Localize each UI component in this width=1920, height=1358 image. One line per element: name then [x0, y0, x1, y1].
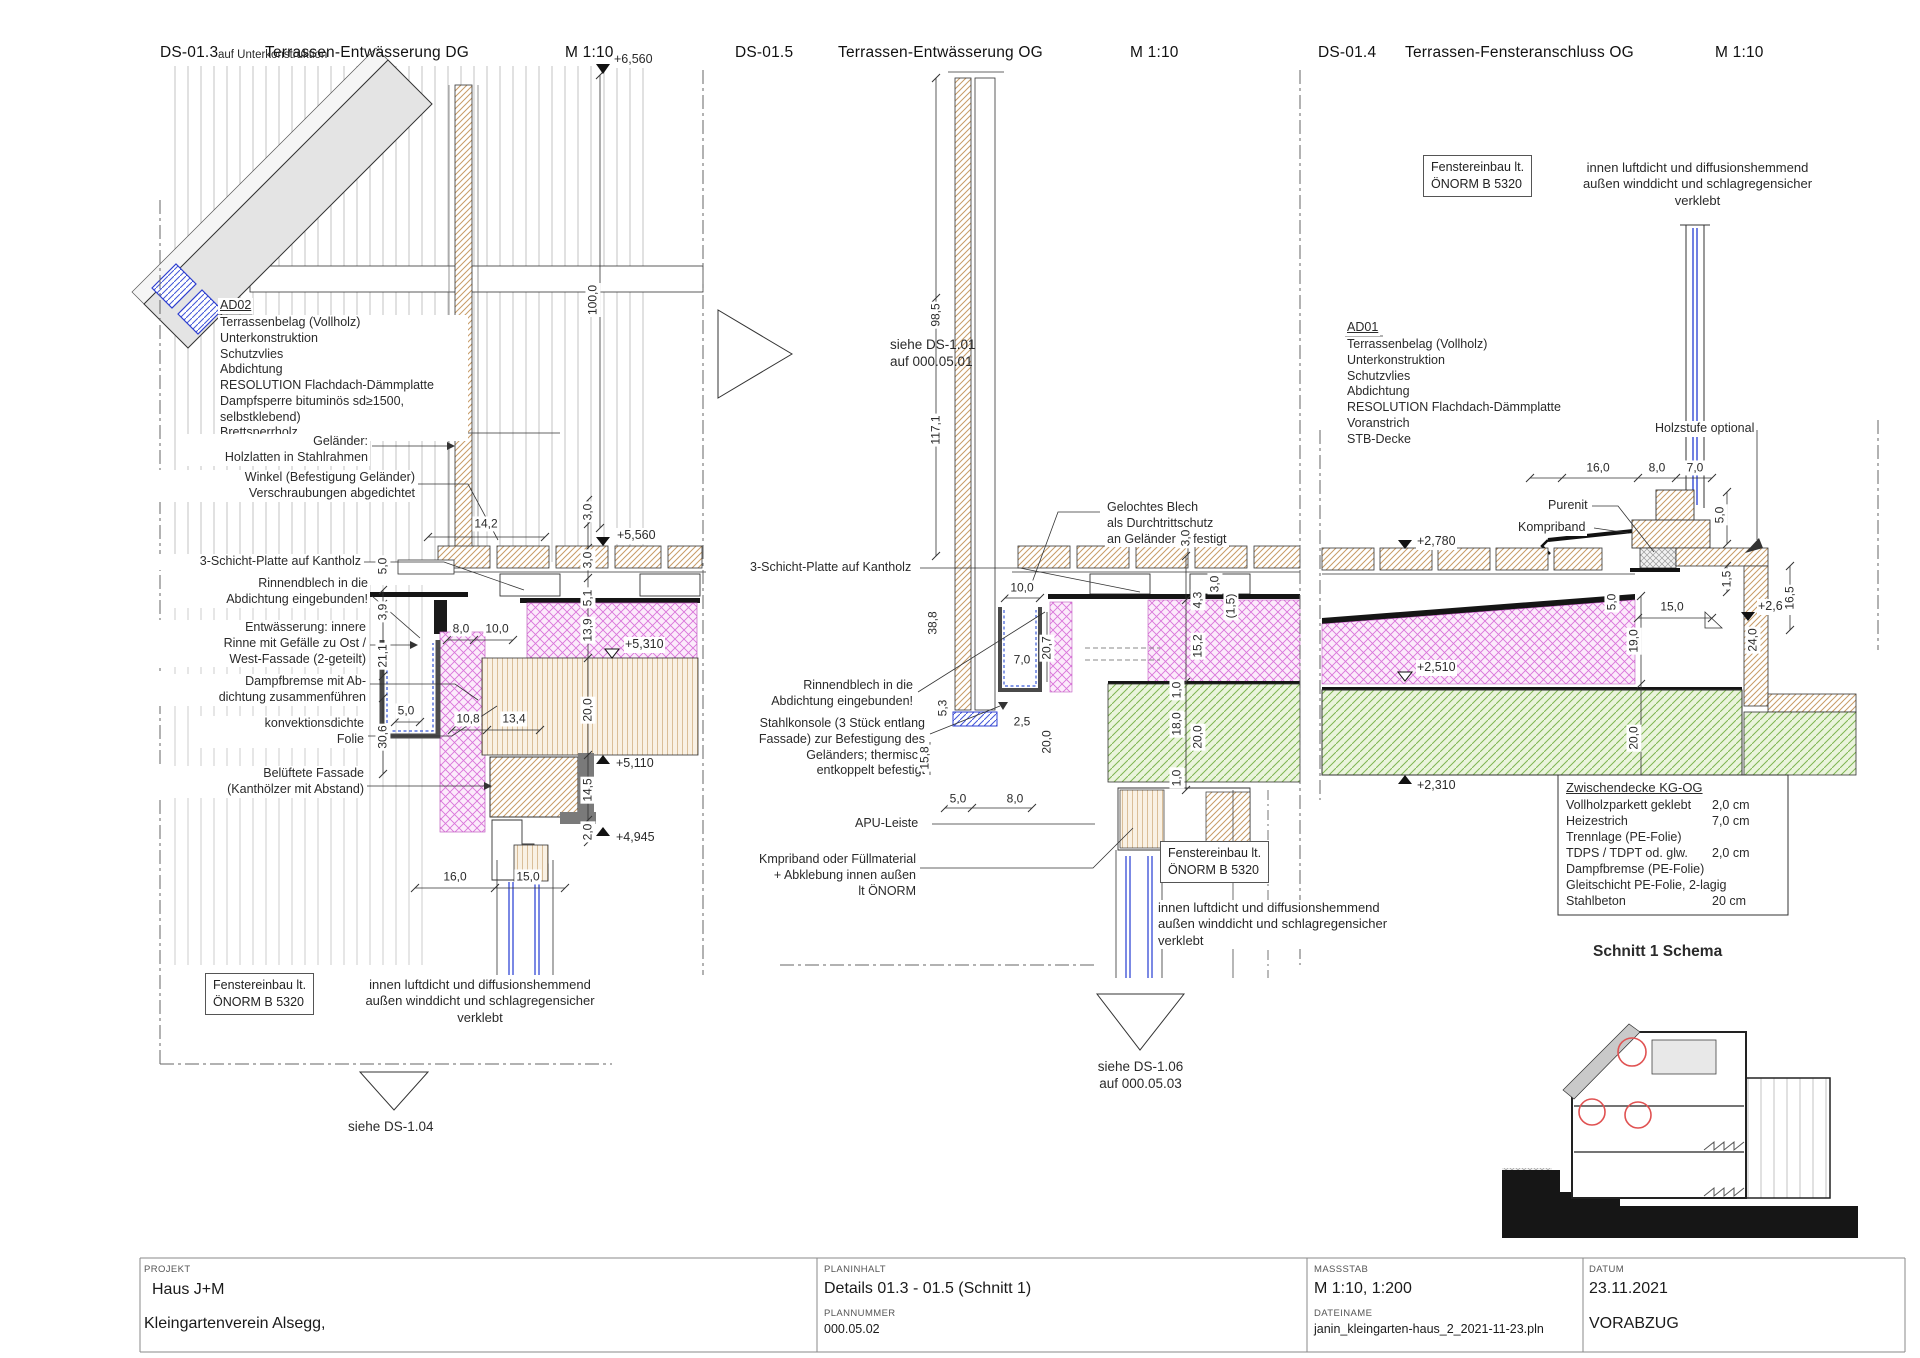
- panel3-scale: M 1:10: [1715, 44, 1764, 62]
- annotation-purenit: Purenit: [1546, 498, 1590, 514]
- panel2-scale: M 1:10: [1130, 44, 1179, 62]
- dim-label: 5,0: [948, 791, 969, 806]
- elevation-mark: +2,780: [1416, 534, 1457, 550]
- annotation-rinnenblech: Rinnendblech in die Abdichtung eingebund…: [713, 678, 915, 710]
- dim-label: 16,0: [1584, 460, 1611, 475]
- dim-label: 10,0: [483, 621, 510, 636]
- annotation-entwaesserung: Entwässerung: innere Rinne mit Gefälle z…: [140, 620, 368, 667]
- dim-label: 98,5: [928, 301, 943, 328]
- table-row-name: Heizestrich: [1566, 814, 1628, 830]
- dim-label: 19,0: [1626, 627, 1641, 654]
- ad01-layer-list: Terrassenbelag (Vollholz) Unterkonstrukt…: [1345, 337, 1585, 447]
- dim-label: 2,0: [580, 822, 595, 843]
- dim-label: 20,7: [1039, 634, 1054, 661]
- fenstereinbau-note: innen luftdicht und diffusionshemmend au…: [1158, 900, 1453, 949]
- annotation-apu-leiste: APU-Leiste: [853, 816, 920, 832]
- table-row-name: Dampfbremse (PE-Folie): [1566, 862, 1704, 878]
- panel1-code: DS-01.3: [160, 44, 218, 62]
- annotation-rinnenblech: Rinnendblech in die Abdichtung eingebund…: [170, 576, 370, 608]
- schema-title: Schnitt 1 Schema: [1593, 942, 1722, 962]
- fenstereinbau-note: innen luftdicht und diffusionshemmend au…: [1550, 160, 1845, 209]
- titleblock-project-label: PROJEKT: [144, 1264, 191, 1275]
- titleblock-scale-label: MASSSTAB: [1314, 1264, 1368, 1275]
- dim-label: 14,2: [472, 516, 499, 531]
- titleblock-content-label: PLANINHALT: [824, 1264, 886, 1275]
- table-row-name: TDPS / TDPT od. glw.: [1566, 846, 1688, 862]
- annotation-kompriband: Kompriband: [1516, 520, 1587, 536]
- table-row-value: 7,0 cm: [1712, 814, 1750, 830]
- see-reference-bottom: siehe DS-1.06 auf 000.05.03: [1068, 1058, 1213, 1092]
- annotation-stahlkonsole: Stahlkonsole (3 Stück entlang Fassade) z…: [725, 716, 927, 779]
- schnitt-schema: [1502, 1024, 1858, 1238]
- annotation-winkel: Winkel (Befestigung Geländer) Verschraub…: [155, 470, 417, 502]
- annotation-gelaender: Geländer: Holzlatten in Stahlrahmen: [180, 434, 370, 466]
- dim-label: 1,0: [1169, 680, 1184, 701]
- titleblock-status: VORABZUG: [1589, 1315, 1679, 1333]
- annotation-folie: konvektionsdichte Folie: [200, 716, 366, 748]
- dim-label: 13,9: [580, 616, 595, 643]
- dim-label: 18,0: [1169, 710, 1184, 737]
- elevation-mark: +2,510: [1416, 660, 1457, 676]
- dim-label: 10,0: [1008, 580, 1035, 595]
- ad01-title: AD01: [1345, 320, 1380, 336]
- dim-label: (1,5): [1223, 592, 1238, 621]
- dim-label: 3,0: [1178, 528, 1193, 549]
- dim-label: 7,0: [1012, 652, 1033, 667]
- dim-label: 8,0: [1005, 791, 1026, 806]
- see-reference-top: siehe DS-1.01 auf 000.05.01: [890, 336, 976, 370]
- dim-label: 13,4: [500, 711, 527, 726]
- annotation-kmpriband: Kmpriband oder Füllmaterial + Abklebung …: [715, 852, 918, 899]
- dim-label: 100,0: [585, 283, 600, 317]
- table-row-name: Trennlage (PE-Folie): [1566, 830, 1682, 846]
- dim-label: 15,0: [514, 869, 541, 884]
- dim-label: 8,0: [1647, 460, 1668, 475]
- titleblock-borders: [140, 1258, 1905, 1352]
- titleblock-content: Details 01.3 - 01.5 (Schnitt 1): [824, 1280, 1031, 1298]
- dim-label: 5,3: [935, 698, 950, 719]
- elevation-mark: +4,945: [615, 830, 656, 846]
- table-row-name: Gleitschicht PE-Folie, 2-lagig: [1566, 878, 1726, 894]
- ad02-layer-list: Terrassenbelag (Vollholz) Unterkonstrukt…: [218, 315, 468, 441]
- dim-label: 8,0: [451, 621, 472, 636]
- panel2-code: DS-01.5: [735, 44, 793, 62]
- titleblock-project-line1: Haus J+M: [152, 1281, 224, 1299]
- fenstereinbau-note: innen luftdicht und diffusionshemmend au…: [335, 977, 625, 1026]
- annotation-holzstufe: Holzstufe optional: [1653, 421, 1756, 437]
- annotation-fassade: Belüftete Fassade (Kanthölzer mit Abstan…: [140, 766, 366, 798]
- table-row-name: Stahlbeton: [1566, 894, 1626, 910]
- dim-label: 3,0: [580, 550, 595, 571]
- dim-label: 7,0: [1685, 460, 1706, 475]
- dim-label: 117,1: [928, 413, 943, 446]
- dim-label: 1,0: [1169, 768, 1184, 789]
- titleblock-date: 23.11.2021: [1589, 1280, 1668, 1298]
- dim-label: 3,9: [375, 602, 390, 623]
- ad02-title: AD02: [218, 298, 253, 314]
- titleblock-number: 000.05.02: [824, 1322, 880, 1336]
- titleblock-scale: M 1:10, 1:200: [1314, 1280, 1412, 1298]
- elevation-mark: +5,310: [624, 637, 665, 653]
- cut-note: auf Unterkonstruktion: [218, 48, 327, 62]
- fenstereinbau-box: Fenstereinbau lt. ÖNORM B 5320: [1160, 841, 1269, 883]
- annotation-dampfbremse: Dampfbremse mit Ab- dichtung zusammenfüh…: [140, 674, 368, 706]
- dim-label: 20,0: [1626, 724, 1641, 751]
- panel2-title: Terrassen-Entwässerung OG: [838, 44, 1043, 62]
- dim-label: 20,0: [1039, 728, 1054, 755]
- dim-label: 20,0: [580, 696, 595, 723]
- dim-label: 5,1: [580, 588, 595, 609]
- titleblock-file: janin_kleingarten-haus_2_2021-11-23.pln: [1314, 1322, 1544, 1336]
- panel3-code: DS-01.4: [1318, 44, 1376, 62]
- dim-label: 1,5: [1719, 569, 1734, 590]
- dim-label: 15,0: [1658, 599, 1685, 614]
- dim-label: 21,1: [375, 642, 390, 669]
- fenstereinbau-box: Fenstereinbau lt. ÖNORM B 5320: [205, 973, 314, 1015]
- table-row-name: Vollholzparkett geklebt: [1566, 798, 1691, 814]
- dim-label: 3,0: [1207, 574, 1222, 595]
- elevation-mark: +6,560: [613, 52, 654, 68]
- dim-label: 30,6: [375, 723, 390, 750]
- dim-label: 5,0: [375, 556, 390, 577]
- dim-label: 14,5: [580, 776, 595, 803]
- titleblock-date-label: DATUM: [1589, 1264, 1624, 1275]
- table-row-value: 2,0 cm: [1712, 798, 1750, 814]
- table-row-value: 20 cm: [1712, 894, 1746, 910]
- dim-label: 15,8: [917, 744, 932, 771]
- dim-label: 16,0: [441, 869, 468, 884]
- dim-label: 15,2: [1190, 632, 1205, 659]
- dim-label: 16,5: [1782, 584, 1797, 611]
- dim-label: 5,0: [1604, 592, 1619, 613]
- floor-table-title: Zwischendecke KG-OG: [1566, 780, 1703, 796]
- dim-label: 38,8: [925, 609, 940, 636]
- dim-label: 4,3: [1190, 590, 1205, 611]
- titleblock-file-label: DATEINAME: [1314, 1308, 1372, 1319]
- titleblock-project-line2: Kleingartenverein Alsegg,: [144, 1315, 325, 1333]
- fenstereinbau-box: Fenstereinbau lt. ÖNORM B 5320: [1423, 155, 1532, 197]
- see-reference: siehe DS-1.04: [348, 1118, 434, 1135]
- elevation-mark: +5,560: [616, 528, 657, 544]
- dim-label: 2,5: [1012, 714, 1033, 729]
- panel3-title: Terrassen-Fensteranschluss OG: [1405, 44, 1634, 62]
- dim-label: 5,0: [1712, 505, 1727, 526]
- annotation-3schicht: 3-Schicht-Platte auf Kantholz: [748, 560, 913, 576]
- titleblock-number-label: PLANNUMMER: [824, 1308, 896, 1319]
- dim-label: 24,0: [1745, 626, 1760, 653]
- annotation-3schicht: 3-Schicht-Platte auf Kantholz: [150, 554, 363, 570]
- panel1-scale: M 1:10: [565, 44, 614, 62]
- table-row-value: 2,0 cm: [1712, 846, 1750, 862]
- dim-label: 3,0: [580, 502, 595, 523]
- dim-label: 5,0: [396, 703, 417, 718]
- annotation-gelochtes-blech: Gelochtes Blech als Durchtrittschutz an …: [1105, 500, 1229, 547]
- dim-label: 20,0: [1190, 723, 1205, 750]
- architectural-plan-sheet: DS-01.3 Terrassen-Entwässerung DG M 1:10…: [0, 0, 1920, 1358]
- elevation-mark: +5,110: [615, 756, 655, 772]
- elevation-mark: +2,310: [1416, 778, 1457, 794]
- dim-label: 10,8: [454, 711, 481, 726]
